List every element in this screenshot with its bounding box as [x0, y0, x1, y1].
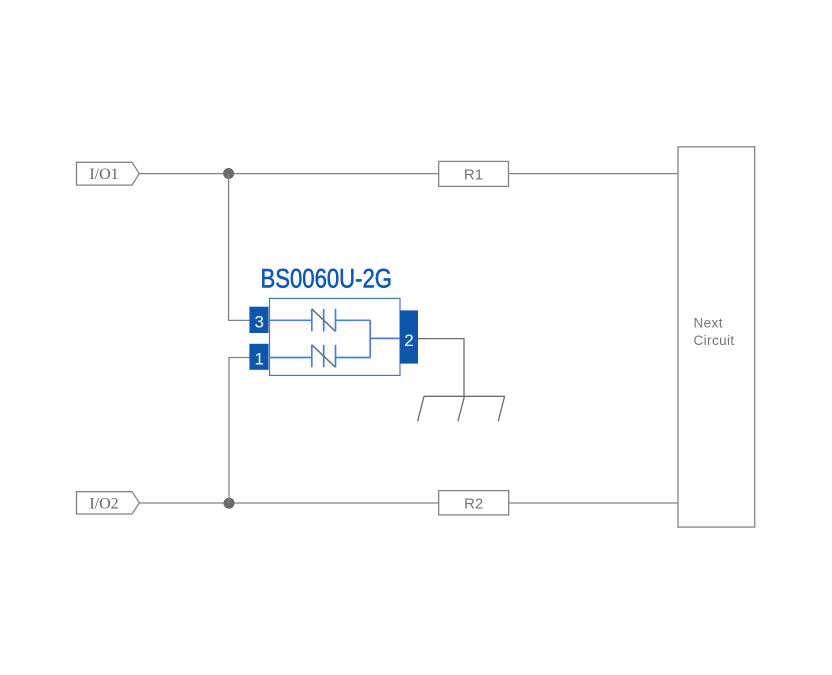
svg-text:1: 1	[254, 349, 263, 368]
svg-text:Next: Next	[694, 316, 723, 331]
svg-text:R1: R1	[464, 166, 483, 183]
svg-text:2: 2	[404, 331, 413, 350]
svg-text:R2: R2	[464, 495, 483, 512]
svg-text:Circuit: Circuit	[694, 333, 735, 348]
svg-text:I/O1: I/O1	[89, 166, 118, 183]
svg-text:3: 3	[254, 313, 263, 332]
svg-text:BS0060U-2G: BS0060U-2G	[261, 264, 393, 294]
svg-text:I/O2: I/O2	[89, 495, 118, 512]
